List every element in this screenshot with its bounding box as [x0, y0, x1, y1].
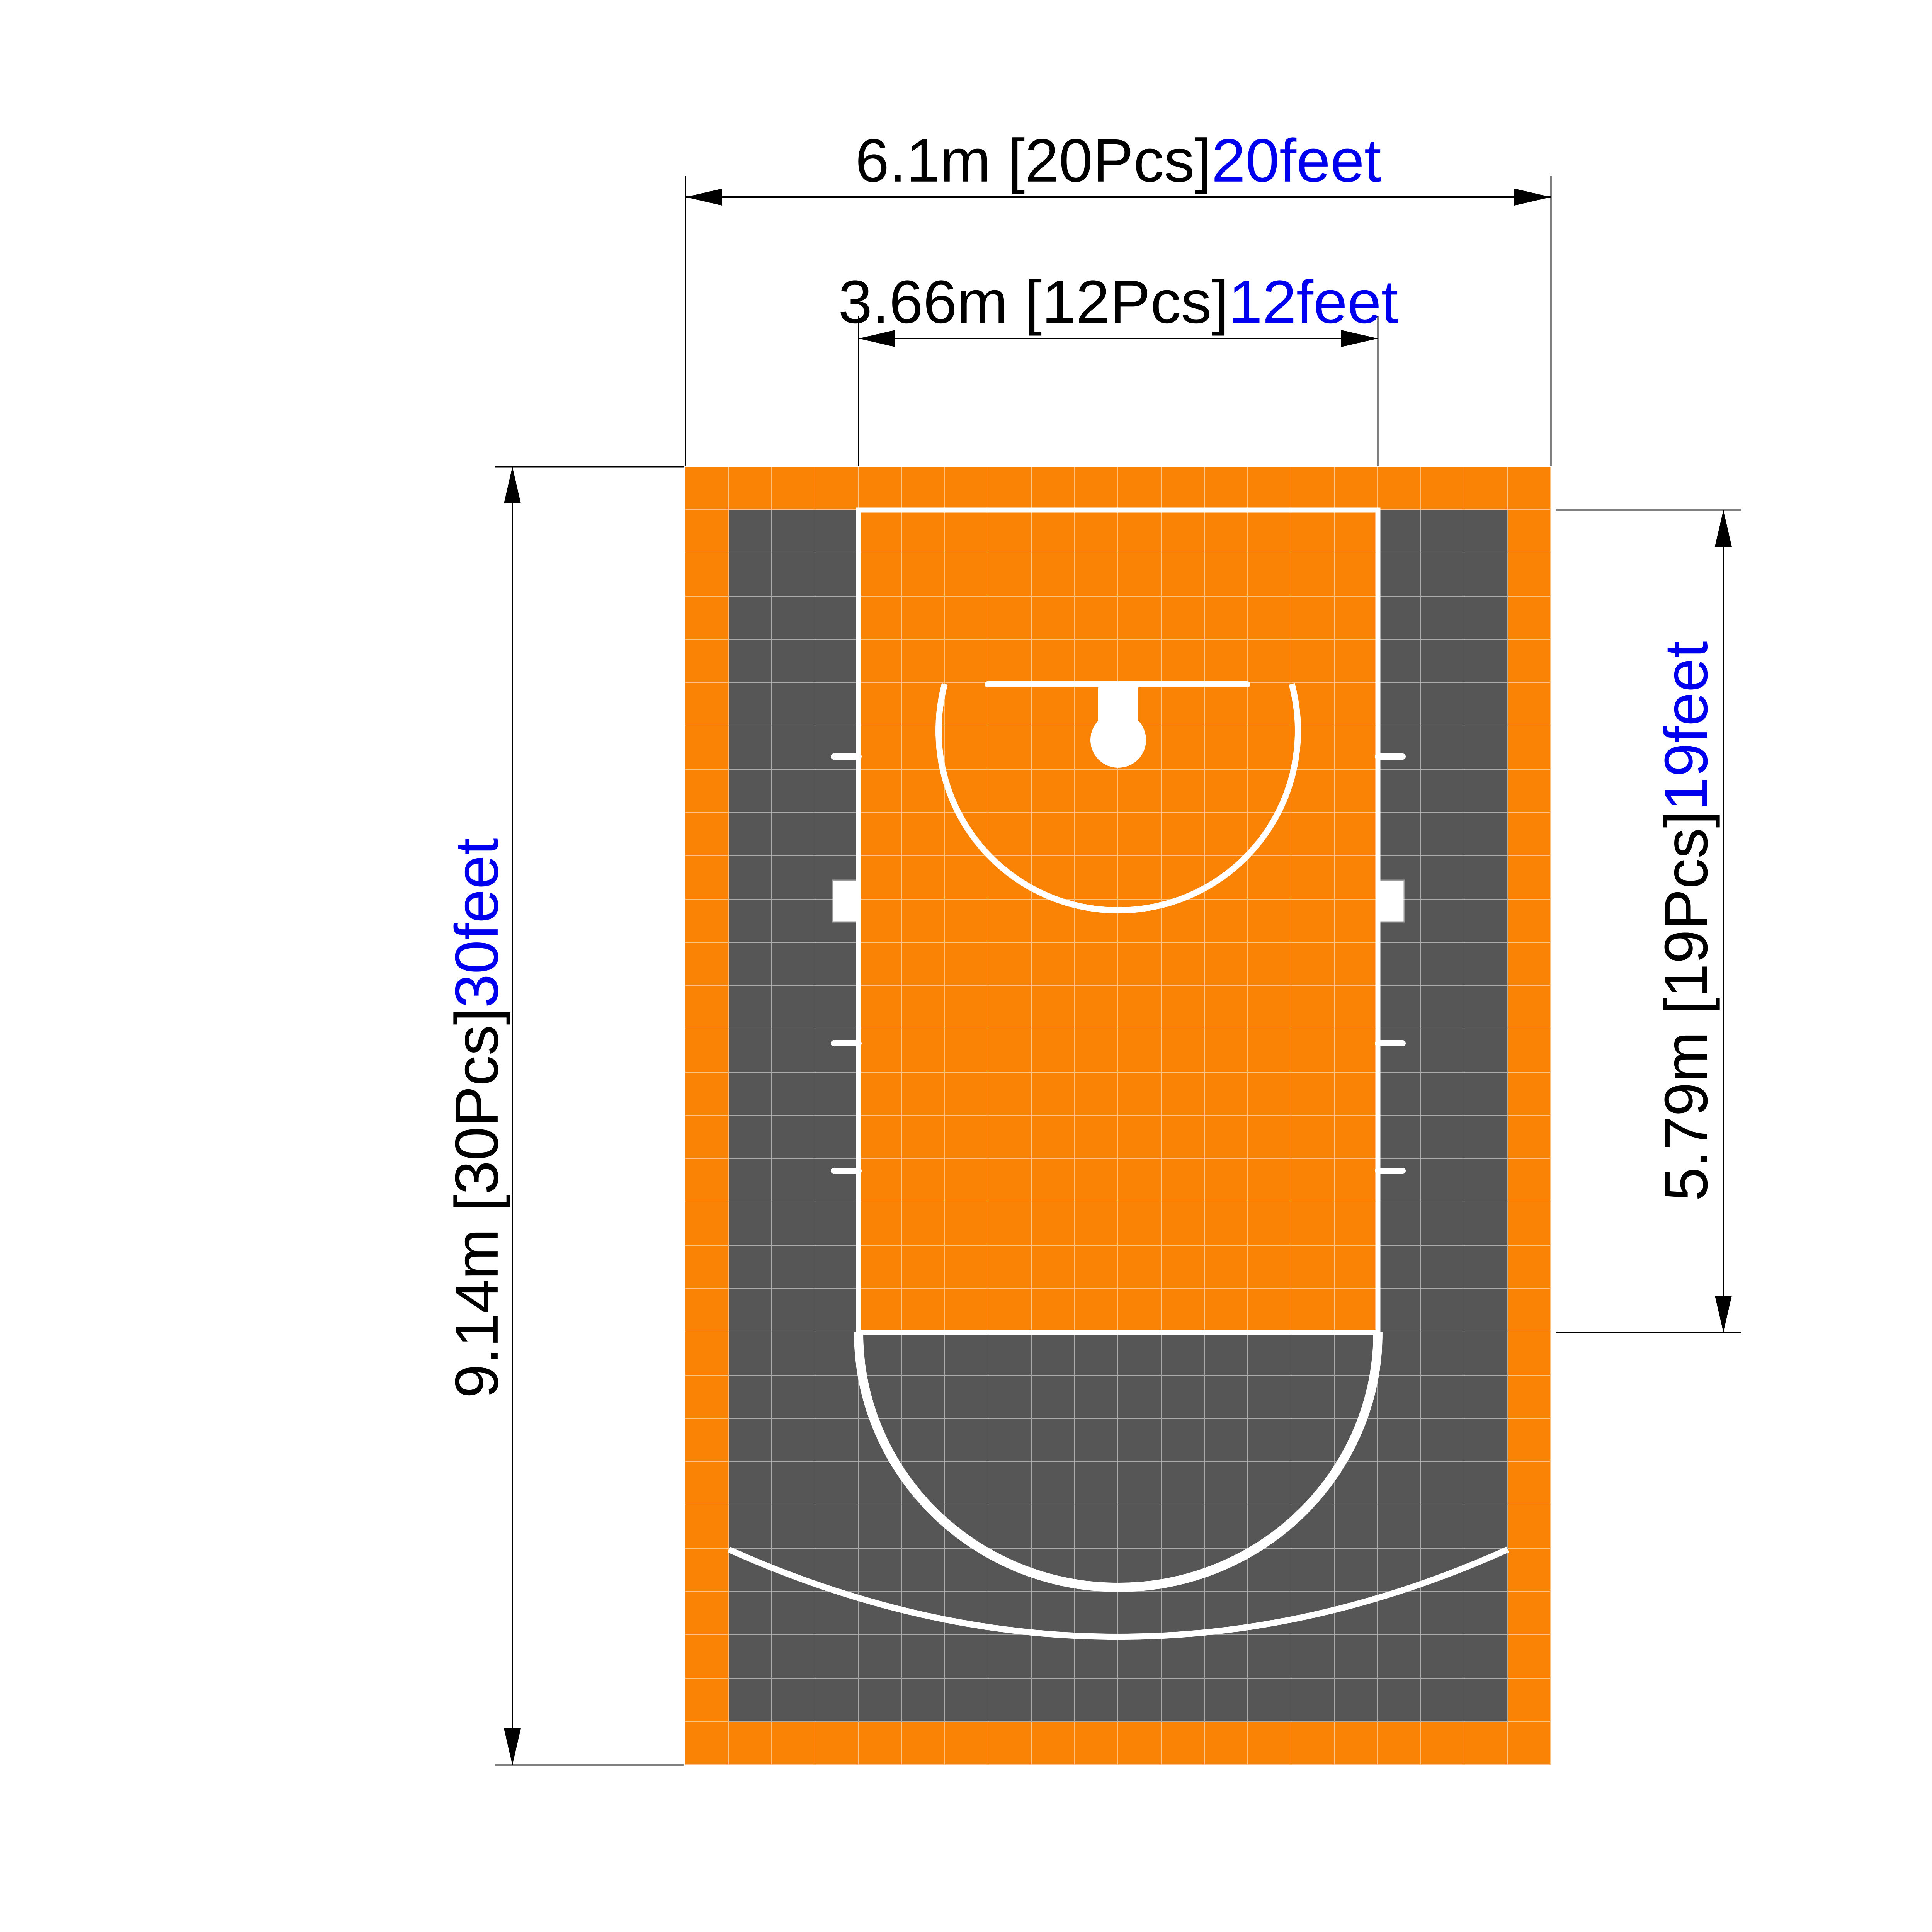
- dim-court-length-label: 9.14m [30Pcs]30feet: [445, 838, 509, 1398]
- dim-key-width-label: 3.66m [12Pcs]12feet: [838, 270, 1398, 334]
- basketball-rim: [1090, 712, 1146, 768]
- dim-arrow-up-icon: [1715, 510, 1732, 547]
- dim-arrow-down-icon: [1715, 1296, 1732, 1332]
- dim-court-length-metric: 9.14m [30Pcs]: [443, 1008, 511, 1398]
- dim-court-width-metric: 6.1m [20Pcs]: [855, 127, 1211, 195]
- dim-arrow-down-icon: [504, 1728, 521, 1765]
- dim-arrow-up-icon: [504, 467, 521, 503]
- dim-key-length-metric: 5.79m [19Pcs]: [1652, 811, 1720, 1201]
- diagram-canvas: 6.1m [20Pcs]20feet 3.66m [12Pcs]12feet 9…: [0, 0, 1932, 1932]
- dim-arrow-right-icon: [1514, 189, 1551, 206]
- tile-grid: [685, 467, 1551, 1765]
- dim-arrow-left-icon: [685, 189, 722, 206]
- dim-key-length-label: 5.79m [19Pcs]19feet: [1655, 641, 1718, 1201]
- dim-key-length-imperial: 19feet: [1652, 641, 1720, 811]
- dim-key-width-metric: 3.66m [12Pcs]: [838, 268, 1228, 336]
- dim-court-width-label: 6.1m [20Pcs]20feet: [855, 129, 1381, 192]
- dim-court-width-imperial: 20feet: [1211, 127, 1381, 195]
- dim-court-length-imperial: 30feet: [443, 838, 511, 1008]
- dim-key-width-imperial: 12feet: [1228, 268, 1398, 336]
